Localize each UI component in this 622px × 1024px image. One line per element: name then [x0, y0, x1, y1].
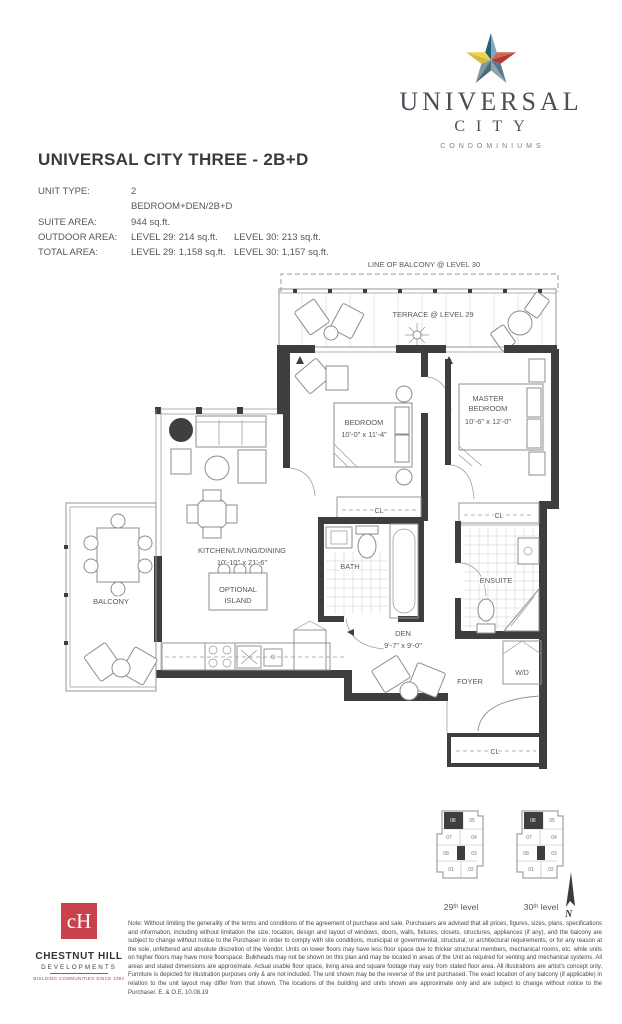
room-label-master-2: BEDROOM	[469, 404, 508, 413]
developer-logo: cH CHESTNUT HILL DEVELOPMENTS BUILDING C…	[32, 903, 126, 981]
room-label-ensuite: ENSUITE	[480, 576, 513, 585]
ensuite: ENSUITE	[455, 521, 547, 639]
foyer: FOYER W/D CL	[447, 641, 541, 765]
den: DEN 9'-7" x 9'-0"	[347, 629, 465, 700]
brand-city: CITY	[398, 118, 584, 136]
terrace-plant	[405, 323, 429, 347]
spec-label: OUTDOOR AREA:	[38, 230, 131, 245]
keyplan-unit-08: 08	[523, 851, 529, 857]
plant	[169, 418, 193, 442]
spec-value-2	[234, 215, 337, 230]
spec-label: UNIT TYPE:	[38, 184, 131, 215]
balcony-chair	[111, 582, 125, 596]
keyplan-unit-06: 06	[450, 818, 456, 824]
keyplan-unit-07: 07	[526, 835, 532, 841]
room-label-bath: BATH	[340, 562, 359, 571]
room-label-den: DEN	[395, 629, 411, 638]
toilet-tank	[356, 526, 378, 534]
developer-name: CHESTNUT HILL	[32, 951, 126, 962]
ensuite-toilet	[478, 599, 494, 621]
kitchen-living-dining: KITCHEN/LIVING/DINING 10'-10" x 21'-6" O…	[162, 416, 345, 670]
spec-row-unit-type: UNIT TYPE: 2 BEDROOM+DEN/2B+D	[38, 184, 337, 215]
bedroom-nightstand	[396, 469, 412, 485]
spec-value-2	[234, 184, 337, 215]
spec-value: 944 sq.ft.	[131, 215, 234, 230]
side-table	[171, 449, 191, 474]
keyplan-level-label-29: 29ᵗʰ level	[429, 902, 493, 912]
entry-door-swing	[478, 696, 540, 731]
north-label: N	[564, 909, 573, 920]
developer-tagline: BUILDING COMMUNITIES SINCE 1981	[32, 976, 126, 981]
keyplan-unit-05: 05	[469, 818, 475, 824]
sofa	[196, 416, 266, 447]
pantry	[294, 630, 326, 670]
balcony-side-table	[112, 659, 130, 677]
stove	[205, 643, 235, 670]
balcony-table	[97, 528, 139, 582]
balcony-chair	[138, 559, 152, 573]
dining-chair	[203, 490, 221, 501]
label-washer-dryer: W/D	[515, 670, 529, 677]
developer-sub: DEVELOPMENTS	[32, 964, 126, 971]
spec-value: 2 BEDROOM+DEN/2B+D	[131, 184, 234, 215]
bath-sink	[326, 527, 352, 548]
balcony-chair	[84, 536, 98, 550]
bed-pillow	[395, 435, 409, 462]
keyplan-unit-02: 02	[548, 867, 554, 873]
spec-label: SUITE AREA:	[38, 215, 131, 230]
room-dims-bedroom: 10'-0" x 11'-4"	[341, 430, 387, 439]
den-table	[400, 682, 418, 700]
terrace-side-table	[324, 326, 338, 340]
label-line-of-balcony: LINE OF BALCONY @ LEVEL 30	[368, 260, 480, 269]
keyplan-unit-01: 01	[448, 867, 454, 873]
label-terrace: TERRACE @ LEVEL 29	[392, 310, 473, 319]
washer-dryer	[503, 641, 541, 684]
dining-chair	[226, 505, 237, 523]
bedroom: BEDROOM 10'-0" x 11'-4" CL	[295, 358, 421, 519]
room-label-kitchen: KITCHEN/LIVING/DINING	[198, 546, 286, 555]
spec-value: LEVEL 29: 214 sq.ft.	[131, 230, 234, 245]
closet-label: CL	[495, 513, 504, 520]
spec-value-2: LEVEL 30: 213 sq.ft.	[234, 230, 337, 245]
keyplan-unit-06: 06	[530, 818, 536, 824]
bed-pillow	[395, 407, 409, 434]
floorplan-page: UNIVERSAL CITY CONDOMINIUMS UNIVERSAL CI…	[0, 0, 622, 1024]
room-label-bedroom: BEDROOM	[345, 418, 384, 427]
label-optional-island-2: ISLAND	[224, 596, 252, 605]
floor-plan: LINE OF BALCONY @ LEVEL 30	[55, 248, 567, 776]
bathtub	[390, 524, 418, 618]
keyplan-unit-03: 03	[471, 851, 477, 857]
keyplan-core	[457, 846, 465, 860]
keyplan-unit-04: 04	[551, 835, 557, 841]
spec-row-outdoor-area: OUTDOOR AREA: LEVEL 29: 214 sq.ft. LEVEL…	[38, 230, 337, 245]
room-label-foyer: FOYER	[457, 677, 483, 686]
label-optional-island-1: OPTIONAL	[219, 585, 257, 594]
kitchen-counter	[162, 643, 330, 670]
closet-label: CL	[375, 508, 384, 515]
balcony-chair	[84, 559, 98, 573]
dining-chair	[187, 505, 198, 523]
bedroom-nightstand	[396, 386, 412, 402]
keyplan-core	[537, 846, 545, 860]
balcony-chair	[111, 514, 125, 528]
brand-star-icon	[464, 30, 518, 86]
master-nightstand	[529, 359, 545, 382]
ensuite-sink	[518, 538, 539, 564]
developer-rule	[50, 973, 108, 974]
bed-pillow	[527, 388, 541, 417]
keyplan-unit-07: 07	[446, 835, 452, 841]
keyplan-unit-02: 02	[468, 867, 474, 873]
room-dims-den: 9'-7" x 9'-0"	[384, 641, 422, 650]
ensuite-shower	[504, 589, 539, 631]
coffee-table	[205, 456, 229, 480]
room-label-master-1: MASTER	[472, 394, 504, 403]
terrace-table	[508, 311, 532, 335]
keyplan-unit-03: 03	[551, 851, 557, 857]
room-label-balcony: BALCONY	[93, 597, 129, 606]
keyplan-unit-05: 05	[549, 818, 555, 824]
master-bedroom: MASTER BEDROOM 10'-6" x 12'-0" CL	[459, 359, 545, 523]
bed-pillow	[527, 419, 541, 448]
master-nightstand	[529, 452, 545, 475]
keyplan-unit-08: 08	[443, 851, 449, 857]
developer-monogram: cH	[67, 909, 92, 933]
toilet-tank	[477, 624, 495, 633]
developer-monogram-icon: cH	[61, 903, 97, 939]
terrace-railing-posts	[293, 289, 542, 293]
ottoman	[238, 450, 266, 483]
dining-table	[195, 497, 229, 531]
bedroom-dresser	[326, 366, 348, 390]
balcony: BALCONY	[64, 503, 158, 691]
dining-chair	[203, 527, 221, 538]
balcony-chair	[138, 536, 152, 550]
brand-condominiums: CONDOMINIUMS	[398, 143, 584, 150]
north-arrow-icon: N	[556, 870, 582, 920]
spec-row-suite-area: SUITE AREA: 944 sq.ft.	[38, 215, 337, 230]
keyplan-unit-01: 01	[528, 867, 534, 873]
closet-label: CL	[491, 749, 500, 756]
prep-sink	[264, 649, 282, 666]
brand-name: UNIVERSAL	[398, 88, 584, 116]
terrace: TERRACE @ LEVEL 29	[279, 289, 556, 352]
legal-note: Note: Without limiting the generality of…	[128, 920, 602, 997]
keyplan-level-29: 06 05 07 04 08 03 01 02	[430, 808, 492, 886]
room-dims-master: 10'-6" x 12'-0"	[465, 417, 511, 426]
brand-logo: UNIVERSAL CITY CONDOMINIUMS	[398, 30, 584, 150]
keyplan-unit-04: 04	[471, 835, 477, 841]
page-title: UNIVERSAL CITY THREE - 2B+D	[38, 150, 309, 170]
bath-toilet	[358, 534, 376, 558]
